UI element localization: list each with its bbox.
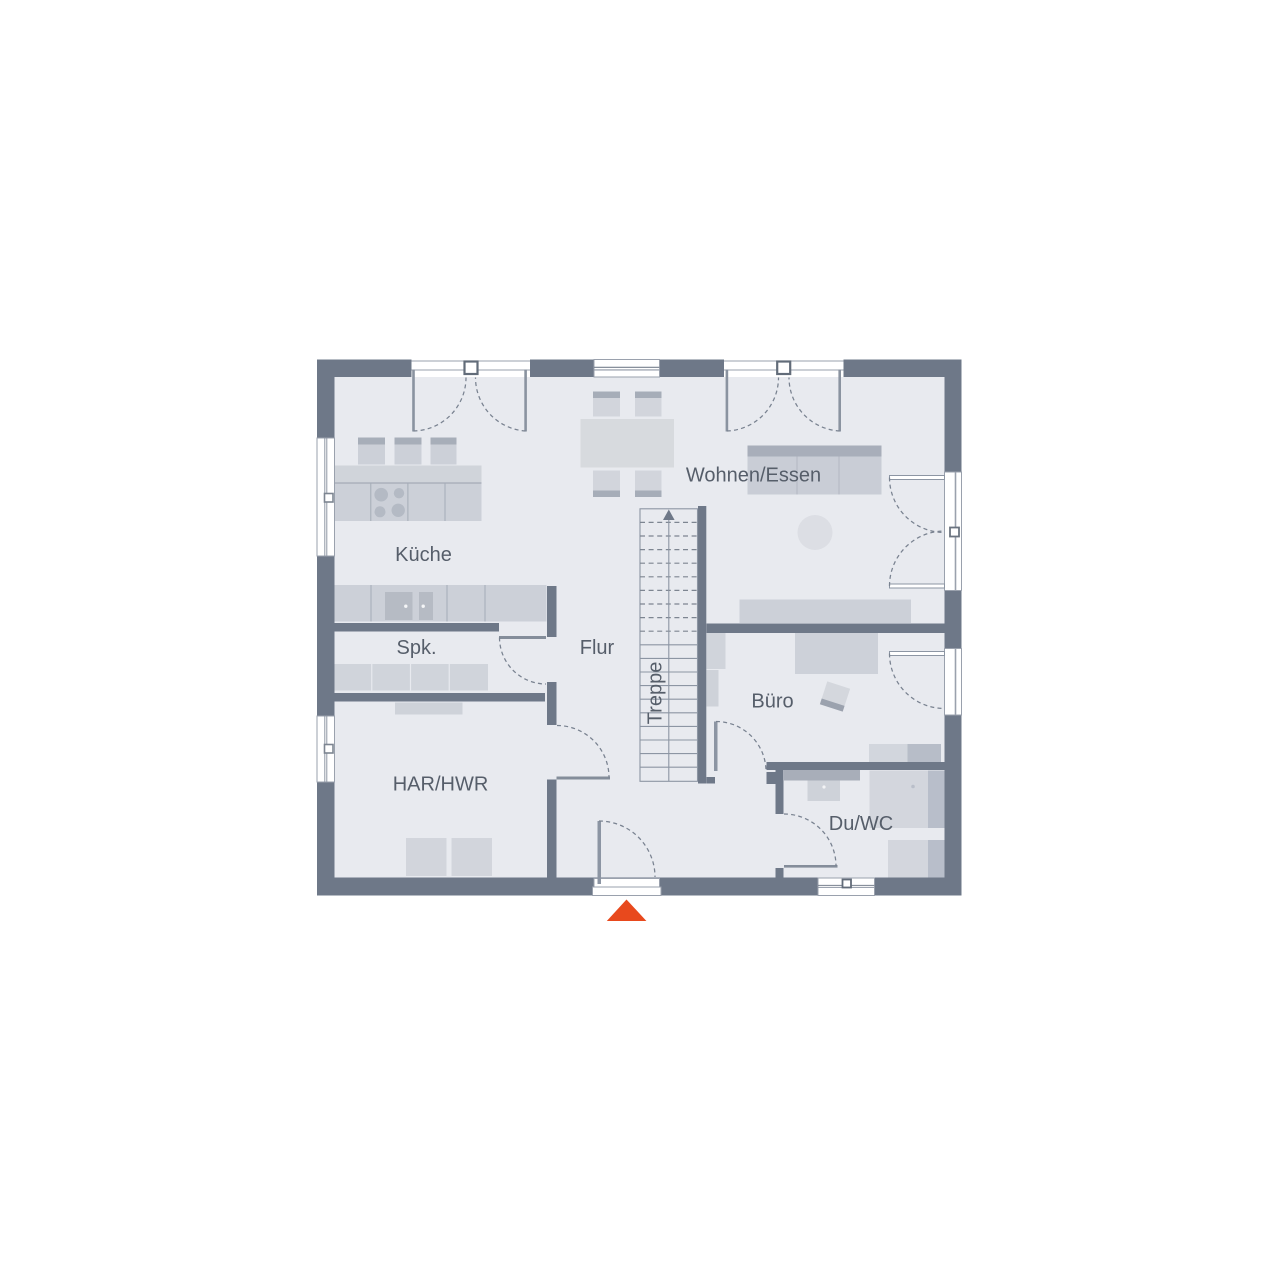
svg-text:Küche: Küche — [395, 544, 452, 566]
svg-text:Flur: Flur — [580, 637, 615, 659]
svg-text:Spk.: Spk. — [396, 637, 436, 659]
svg-text:Büro: Büro — [751, 691, 793, 713]
svg-text:Wohnen/Essen: Wohnen/Essen — [686, 465, 821, 487]
svg-text:Du/WC: Du/WC — [829, 813, 893, 835]
svg-text:HAR/HWR: HAR/HWR — [393, 774, 489, 796]
svg-text:Treppe: Treppe — [645, 662, 667, 725]
